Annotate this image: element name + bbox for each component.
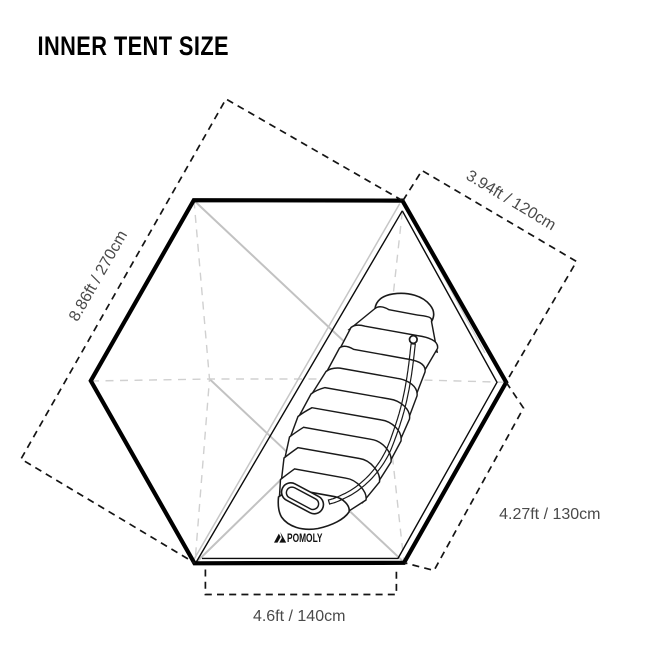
svg-text:8.86ft / 270cm: 8.86ft / 270cm — [66, 228, 131, 324]
svg-text:3.94ft / 120cm: 3.94ft / 120cm — [463, 167, 559, 234]
svg-text:POMOLY: POMOLY — [287, 531, 323, 545]
svg-text:4.6ft / 140cm: 4.6ft / 140cm — [253, 608, 346, 625]
svg-text:INNER TENT SIZE: INNER TENT SIZE — [38, 31, 230, 61]
svg-text:4.27ft / 130cm: 4.27ft / 130cm — [499, 506, 600, 523]
